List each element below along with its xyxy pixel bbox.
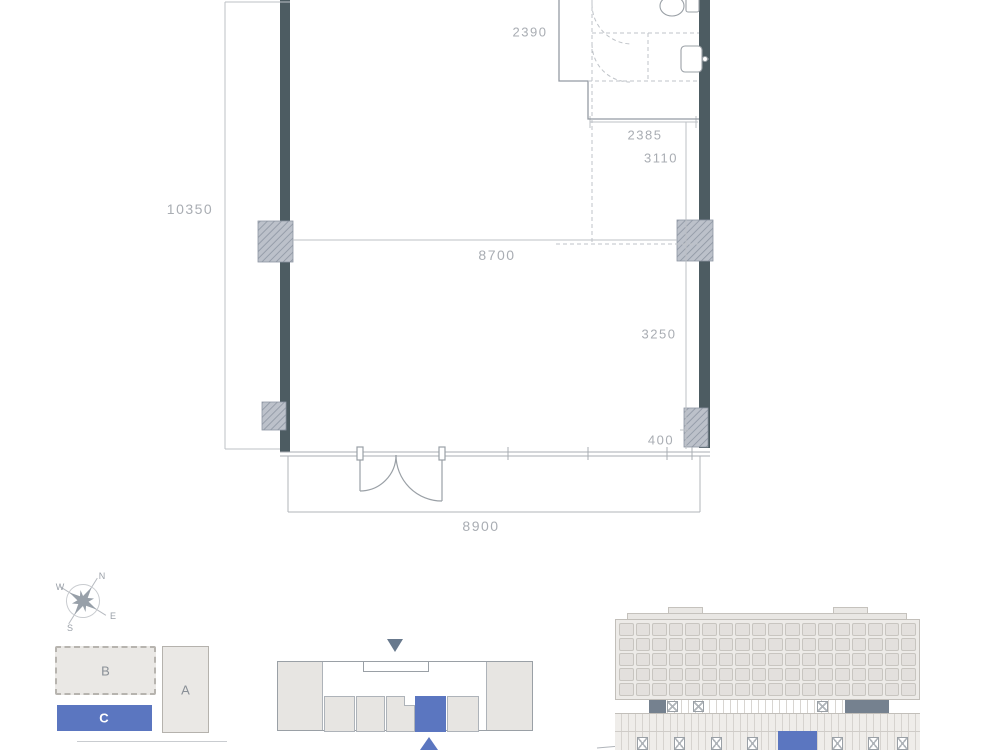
elevation-window-cell (768, 623, 783, 636)
key-plan-end-block (486, 662, 532, 730)
elevation-window-cell (785, 638, 800, 651)
compass-rose-icon (46, 564, 120, 638)
dimension-label: 3110 (644, 151, 678, 166)
elevation-window-cell (818, 683, 833, 696)
elevation-window-cell (636, 623, 651, 636)
elevation-window-cell (669, 668, 684, 681)
elevation-window-cell (818, 668, 833, 681)
elevation-window-cell (852, 683, 867, 696)
elevation-window-cell (652, 683, 667, 696)
key-plan-unit (386, 696, 415, 732)
elevation-window-cell (735, 653, 750, 666)
elevation-dark-panel (845, 700, 889, 713)
elevation-window-cell (652, 653, 667, 666)
key-plan-unit-notch (404, 696, 415, 706)
key-plan-unit (447, 696, 479, 732)
elevation-window-cell (636, 653, 651, 666)
elevation-window-cell (852, 623, 867, 636)
sink-icon (681, 46, 702, 72)
elevation-window-cell (619, 653, 634, 666)
elevation-window-cell (702, 683, 717, 696)
elevation-window-cell (636, 638, 651, 651)
elevation-window-cell (636, 683, 651, 696)
elevation-x-window (693, 701, 704, 712)
elevation-roof-box (668, 607, 703, 614)
elevation-x-window (637, 737, 648, 750)
site-block-a: A (162, 646, 209, 733)
elevation-window-cell (702, 668, 717, 681)
elevation-window-cell (735, 683, 750, 696)
elevation-x-window (711, 737, 722, 750)
elevation-unit-highlighted (778, 731, 817, 750)
elevation-window-cell (719, 638, 734, 651)
elevation-window-cell (669, 623, 684, 636)
compass-north-label: N (99, 571, 106, 581)
key-plan-end-block (278, 662, 323, 730)
key-plan-unit-highlighted (415, 696, 446, 732)
elevation-window-cell (785, 623, 800, 636)
bathroom-wall-outline (559, 0, 699, 119)
door-swing-arc (592, 44, 630, 82)
elevation-roof-box (833, 607, 868, 614)
elevation-window-cell (752, 623, 767, 636)
elevation-window-cell (669, 638, 684, 651)
elevation-window-cell (652, 638, 667, 651)
elevation-window-cell (868, 623, 883, 636)
elevation-window-cell (685, 653, 700, 666)
site-block-b-label: B (101, 663, 110, 678)
elevation-window-cell (619, 683, 634, 696)
elevation-window-cell (719, 668, 734, 681)
compass-south-label: S (67, 623, 73, 633)
elevation-window-cell (885, 638, 900, 651)
elevation-window-cell (669, 683, 684, 696)
elevation-window-cell (901, 623, 916, 636)
elevation-window-cell (685, 623, 700, 636)
elevation-window-cell (885, 653, 900, 666)
elevation-window-cell (868, 668, 883, 681)
toilet-tank-icon (686, 0, 699, 12)
elevation-window-cell (735, 623, 750, 636)
elevation-window-cell (818, 623, 833, 636)
locator-arrow-down-icon (387, 639, 403, 652)
elevation-window-cell (702, 653, 717, 666)
elevation-window-cell (852, 668, 867, 681)
elevation-window-cell (685, 683, 700, 696)
elevation-x-window (868, 737, 879, 750)
left-wall (280, 0, 290, 452)
elevation-floor-line (615, 731, 920, 732)
elevation-window-cell (868, 653, 883, 666)
architectural-drawing-sheet: 2390 2385 3110 10350 8700 3250 400 8900 … (0, 0, 1000, 750)
key-plan-core-notch (363, 661, 429, 672)
elevation-window-cell (852, 638, 867, 651)
elevation-window-cell (901, 653, 916, 666)
elevation-window-cell (768, 683, 783, 696)
elevation-window-cell (901, 638, 916, 651)
elevation-window-cell (752, 638, 767, 651)
elevation-window-cell (685, 638, 700, 651)
compass-east-label: E (110, 611, 116, 621)
elevation-window-cell (619, 668, 634, 681)
elevation-window-cell (768, 668, 783, 681)
elevation-window-cell (752, 653, 767, 666)
site-road-line (77, 741, 227, 742)
dimension-label: 3250 (642, 327, 677, 342)
elevation-x-window (674, 737, 685, 750)
elevation-window-cell (619, 638, 634, 651)
dimension-label: 8700 (478, 247, 515, 263)
elevation-window-cell (719, 653, 734, 666)
elevation-window-cell (619, 623, 634, 636)
elevation-window-cell (835, 623, 850, 636)
elevation-x-window (817, 701, 828, 712)
site-block-a-label: A (181, 682, 190, 697)
key-plan-unit (356, 696, 385, 732)
elevation-window-cell (719, 623, 734, 636)
dimension-label: 2390 (513, 25, 548, 40)
elevation-window-cell (702, 638, 717, 651)
elevation-window-cell (735, 668, 750, 681)
elevation-x-window (747, 737, 758, 750)
elevation-window-cell (752, 668, 767, 681)
toilet-icon (660, 0, 684, 16)
elevation-x-window (667, 701, 678, 712)
key-plan-outline (277, 661, 533, 731)
site-block-b: B (55, 646, 156, 695)
elevation-window-cell (852, 653, 867, 666)
elevation-window-cell (752, 683, 767, 696)
elevation-window-cell (802, 683, 817, 696)
elevation-window-cell (885, 683, 900, 696)
window-wall (280, 447, 710, 460)
elevation-window-cell (669, 653, 684, 666)
elevation-window-cell (901, 668, 916, 681)
elevation-window-cell (802, 653, 817, 666)
elevation-window-cell (868, 683, 883, 696)
elevation-window-cell (636, 668, 651, 681)
sink-tap-icon (703, 57, 708, 62)
elevation-window-cell (835, 668, 850, 681)
elevation-x-window (832, 737, 843, 750)
elevation-x-window (897, 737, 908, 750)
elevation-window-cell (835, 683, 850, 696)
dimension-lines (225, 2, 698, 449)
elevation-window-cell (818, 653, 833, 666)
elevation-window-cell (719, 683, 734, 696)
elevation-window-cell (802, 623, 817, 636)
right-wall (699, 0, 710, 448)
dimension-label: 400 (648, 433, 674, 448)
elevation-window-grid (619, 623, 916, 696)
elevation-window-cell (768, 653, 783, 666)
dimension-label: 8900 (462, 518, 499, 534)
locator-arrow-up-icon (420, 737, 438, 750)
elevation-window-cell (652, 668, 667, 681)
elevation-upper-block (615, 619, 920, 700)
elevation-window-cell (901, 683, 916, 696)
elevation-window-cell (802, 668, 817, 681)
elevation-window-cell (702, 623, 717, 636)
elevation-window-cell (885, 623, 900, 636)
elevation-window-cell (835, 653, 850, 666)
elevation-window-cell (768, 638, 783, 651)
elevation-window-cell (835, 638, 850, 651)
dimension-label: 10350 (167, 201, 213, 217)
key-plan-unit (324, 696, 355, 732)
compass-west-label: W (56, 582, 65, 592)
elevation-window-cell (685, 668, 700, 681)
elevation-window-cell (785, 653, 800, 666)
elevation-window-cell (735, 638, 750, 651)
elevation-window-cell (785, 683, 800, 696)
entrance-door (357, 447, 445, 501)
elevation-window-cell (818, 638, 833, 651)
bathroom-partitions-dashed (556, 0, 699, 244)
door-swing-arc (592, 4, 632, 44)
terrace-outline (288, 456, 700, 512)
elevation-window-cell (785, 668, 800, 681)
site-block-c-label: C (99, 711, 109, 726)
elevation-window-cell (802, 638, 817, 651)
elevation-window-cell (652, 623, 667, 636)
elevation-dark-panel (649, 700, 666, 713)
elevation-window-cell (885, 668, 900, 681)
site-block-c-highlighted: C (57, 705, 152, 731)
elevation-window-cell (868, 638, 883, 651)
dimension-label: 2385 (628, 128, 663, 143)
